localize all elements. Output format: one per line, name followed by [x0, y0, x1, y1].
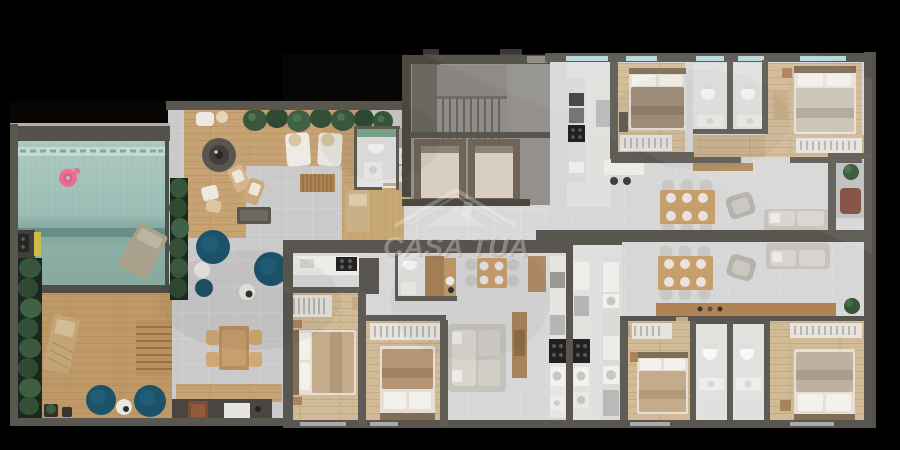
svg-text:CASA TUA: CASA TUA [384, 233, 530, 263]
